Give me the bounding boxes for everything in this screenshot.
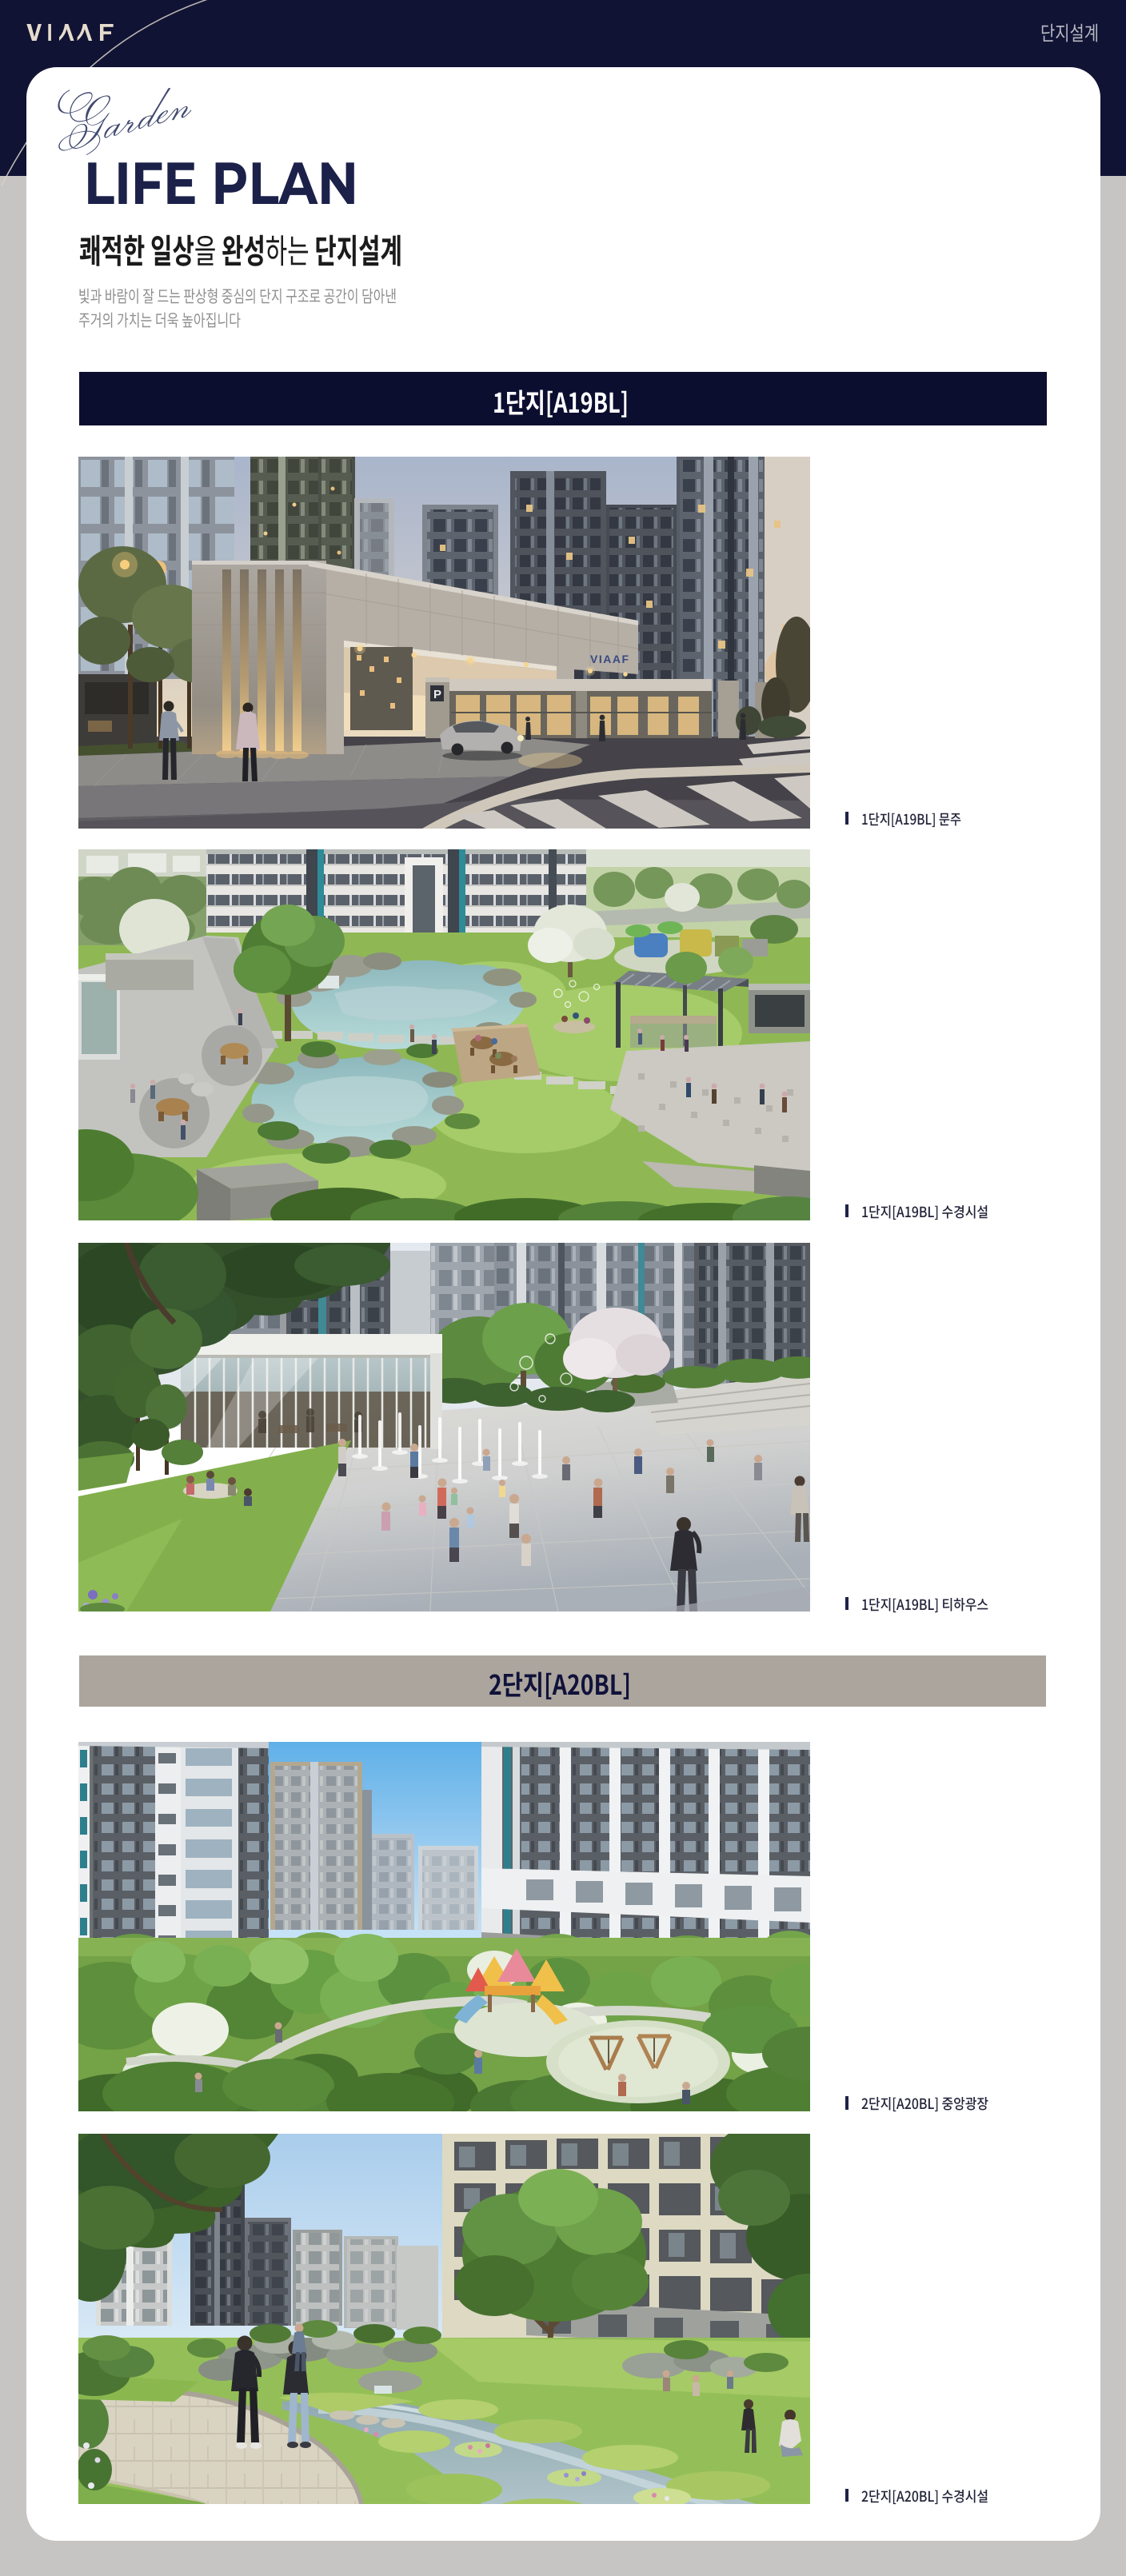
svg-text:VIAAF: VIAAF bbox=[590, 653, 630, 665]
svg-text:P: P bbox=[433, 688, 441, 701]
